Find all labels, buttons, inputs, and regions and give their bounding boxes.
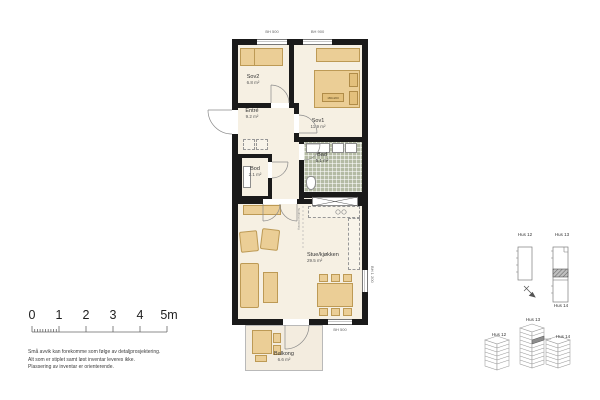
pillow-1 (349, 73, 358, 87)
wall-shaft-end (358, 196, 362, 206)
scale-number: 2 (76, 308, 96, 322)
axon-hus14-label: Hus 14 (551, 334, 575, 339)
wall-sov2-sov1 (289, 45, 294, 108)
disclaimer-line: Plassering av inventar er orienterende. (28, 364, 160, 372)
door-opening-sov1 (294, 114, 299, 133)
room-label-sov2: Sov2 6.8 m² (238, 74, 268, 86)
axon-hus13-label: Hus 13 (521, 317, 545, 322)
wardrobe-sov1 (316, 48, 360, 62)
scale-number: 1 (49, 308, 69, 322)
bh-label-bottom: BH 500 (326, 327, 354, 332)
siteplan-hus13-label: Hus 13 (550, 232, 574, 237)
site-plan-diagram (480, 228, 595, 318)
kitchen-counter-top (308, 206, 360, 218)
window-right (362, 270, 368, 292)
bed-size-label: 180x200 (322, 93, 344, 102)
ceiling-note: Nedforet himling (297, 208, 301, 230)
window-bottom (328, 319, 352, 325)
pillow-2 (349, 91, 358, 105)
window-top-left (257, 39, 287, 45)
sideboard (243, 205, 281, 215)
scale-number: 0 (22, 308, 42, 322)
wardrobe-sov2 (240, 48, 283, 66)
dashed-wardrobe-2 (256, 139, 268, 150)
coffee-table (263, 272, 278, 303)
room-label-bod: Bod 2.1 m² (242, 166, 268, 178)
dining-table (317, 283, 353, 307)
dining-chair (319, 308, 328, 316)
scale-bar-ruler (20, 323, 190, 334)
axon-hus12-label: Hus 12 (487, 332, 511, 337)
door-opening-sov2 (271, 103, 289, 108)
room-label-balkong: Balkong 6.6 m² (265, 351, 303, 363)
door-opening-bod (268, 162, 272, 178)
wardrobe-sov2-divider (254, 48, 255, 66)
axonometric-diagram (480, 318, 595, 388)
floorplan-sheet: 180x200 Nedforet himling Sov2 6.8 m² Sov… (0, 0, 600, 400)
disclaimer-text: Små avvik kan forekomme som følge av det… (28, 349, 160, 372)
armchair-1 (239, 230, 259, 253)
scale-number: 5m (159, 308, 179, 322)
north-arrow-icon (524, 286, 535, 297)
room-label-bad: Bad 5.1 m² (307, 152, 337, 164)
scale-number: 3 (103, 308, 123, 322)
toilet (306, 176, 316, 190)
bh-label-right: BH 1 200 (370, 266, 375, 283)
shaft-box (312, 197, 358, 206)
dining-chair (331, 308, 340, 316)
dining-chair (319, 274, 328, 282)
dining-chair (343, 308, 352, 316)
room-label-entre: Entré 9.2 m² (239, 108, 265, 120)
door-opening-stue (263, 199, 297, 204)
highlighted-unit (553, 269, 568, 277)
sofa (240, 263, 259, 308)
siteplan-hus12-label: Hus 12 (513, 232, 537, 237)
bh-label-top-left: BH 500 (257, 29, 287, 34)
armchair-2 (260, 228, 280, 251)
bh-label-top-right: BH 900 (303, 29, 332, 34)
scale-number: 4 (130, 308, 150, 322)
dining-chair (343, 274, 352, 282)
disclaimer-line: Små avvik kan forekomme som følge av det… (28, 349, 160, 357)
balcony-chair (273, 333, 281, 343)
dryer (345, 143, 357, 153)
disclaimer-line: Alt som er stiplet samt løst inventar le… (28, 357, 160, 365)
dining-chair (331, 274, 340, 282)
dashed-wardrobe-1 (243, 139, 255, 150)
room-label-stue: Stue/kjøkken 29.5 m² (307, 252, 351, 264)
scale-bar: 0 1 2 3 4 5m (20, 308, 190, 334)
room-label-sov1: Sov1 11.9 m² (303, 118, 333, 130)
entrance-door-opening (232, 110, 238, 134)
window-top-right (303, 39, 332, 45)
siteplan-hus14-label: Hus 14 (549, 303, 573, 308)
